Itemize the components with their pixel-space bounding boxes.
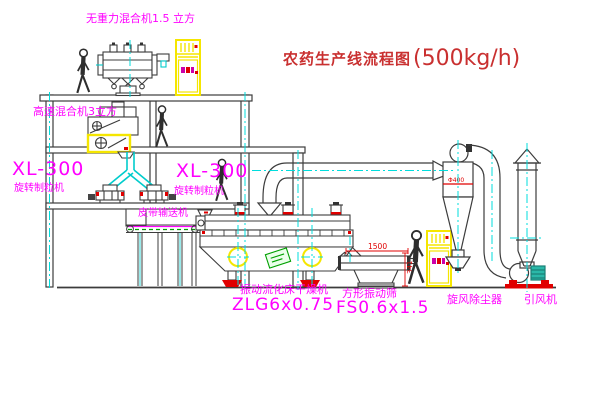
label-granulator-left: 旋转制粒机 <box>14 184 64 194</box>
label-belt-conveyor: 皮带输送机 <box>138 209 188 219</box>
label-cyclone: 旋风除尘器 <box>447 294 502 305</box>
production-line-diagram: 1500 341 Φ400 <box>0 0 600 403</box>
label-dryer-name: 振动流化床干燥机 <box>240 284 328 295</box>
granulator-left <box>88 185 124 203</box>
label-fan: 引风机 <box>524 294 557 305</box>
title-chinese: 农药生产线流程图 <box>283 48 411 69</box>
label-granulator-right: 旋转制粒机 <box>174 187 224 197</box>
diagram-title: 农药生产线流程图 (500kg/h) <box>283 46 520 71</box>
label-dryer-model: ZLG6x0.75 <box>232 297 334 314</box>
label-xl300-right: XL-300 <box>176 162 248 181</box>
title-capacity: (500kg/h) <box>413 46 520 71</box>
dim-1500: 1500 <box>368 242 387 251</box>
worker-top-floor <box>77 49 89 93</box>
worker-ground <box>409 231 423 284</box>
cyclone-separator: Φ400 <box>443 144 500 271</box>
label-xl300-left: XL-300 <box>12 160 84 179</box>
gravity-free-mixer <box>96 43 169 96</box>
dim-cyclone-dia: Φ400 <box>448 177 464 184</box>
label-gravity-mixer: 无重力混合机1.5 立方 <box>86 13 195 24</box>
bucket-elevator-top <box>176 40 200 95</box>
fluid-bed-dryer <box>200 202 362 287</box>
worker-second-floor <box>156 106 167 147</box>
label-high-speed-mixer: 高速混合机3立方 <box>33 106 117 117</box>
induced-draft-fan <box>484 250 553 289</box>
belt-conveyor <box>126 225 200 286</box>
label-screen-model: FS0.6x1.5 <box>336 300 429 317</box>
